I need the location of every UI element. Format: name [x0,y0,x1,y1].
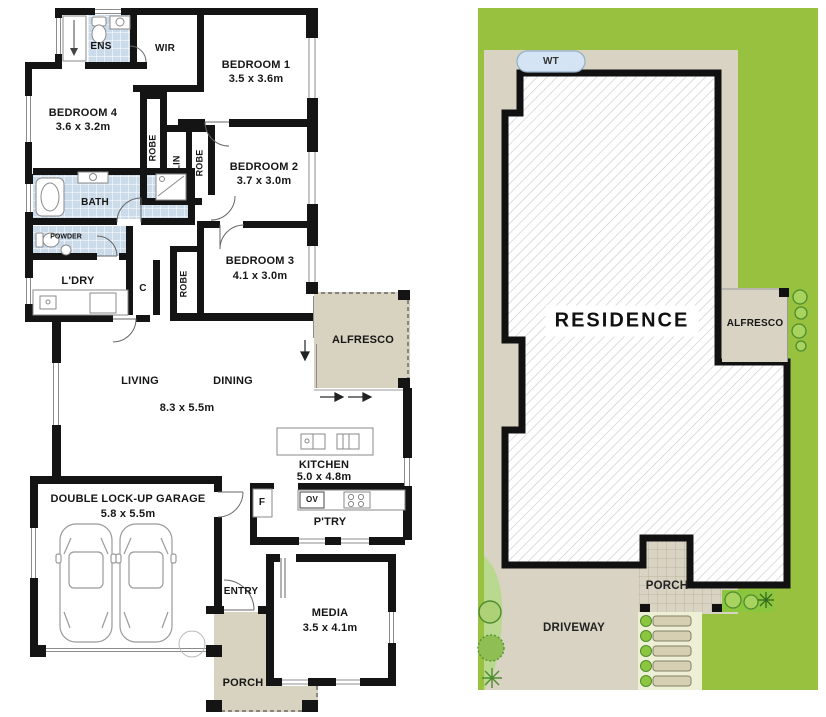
room-label-robe-bed3: ROBE [178,271,189,298]
cars [56,524,176,642]
room-label-powder: POWDER [50,234,82,243]
room-label-wir: WIR [155,43,175,56]
room-label-bedroom3: BEDROOM 3 [226,255,294,269]
room-dims-bedroom4: 3.6 x 3.2m [56,121,111,135]
room-label-media: MEDIA [312,607,348,621]
residence-label: RESIDENCE [546,306,699,337]
hedge-sprig [758,592,774,608]
room-label-ens: ENS [90,41,111,54]
alfresco-site-label: ALFRESCO [727,318,784,331]
room-label-living: LIVING [121,375,159,389]
room-label-robe-bed2: ROBE [194,150,205,177]
room-label-bath: BATH [81,197,109,210]
water-tank-label: WT [543,56,559,69]
appliance-label-oven: OV [306,495,318,505]
room-dims-garage: 5.8 x 5.5m [101,508,156,522]
room-dims-bedroom1: 3.5 x 3.6m [229,73,284,87]
driveway-label: DRIVEWAY [543,621,605,635]
room-label-bedroom1: BEDROOM 1 [222,59,290,73]
porch-site-label: PORCH [646,579,689,593]
room-label-robe-bed4: ROBE [147,135,158,162]
room-label-bedroom4: BEDROOM 4 [49,107,117,121]
floorplan-page: ENS WIR BEDROOM 1 3.5 x 3.6m BEDROOM 4 3… [0,0,826,717]
room-dims-bedroom2: 3.7 x 3.0m [237,175,292,189]
room-dims-kitchen: 5.0 x 4.8m [297,471,352,485]
room-label-laundry: L'DRY [61,275,94,289]
room-label-entry: ENTRY [224,586,259,599]
room-label-porch-plan: PORCH [223,677,264,691]
room-label-cupboard: C [139,283,146,296]
room-label-garage: DOUBLE LOCK-UP GARAGE [51,493,206,507]
room-dims-media: 3.5 x 4.1m [303,622,358,636]
room-label-alfresco-plan: ALFRESCO [332,334,394,348]
plan-drawing [0,0,826,717]
room-label-bedroom2: BEDROOM 2 [230,161,298,175]
appliance-label-fridge: F [259,497,265,510]
room-dims-bedroom3: 4.1 x 3.0m [233,270,288,284]
room-label-dining: DINING [213,375,253,389]
room-label-lin: LIN [171,155,182,170]
room-label-pantry: P'TRY [314,516,347,530]
room-dims-living-dining: 8.3 x 5.5m [160,402,215,416]
stepping-stones [641,616,692,687]
palm-plant [482,668,502,688]
